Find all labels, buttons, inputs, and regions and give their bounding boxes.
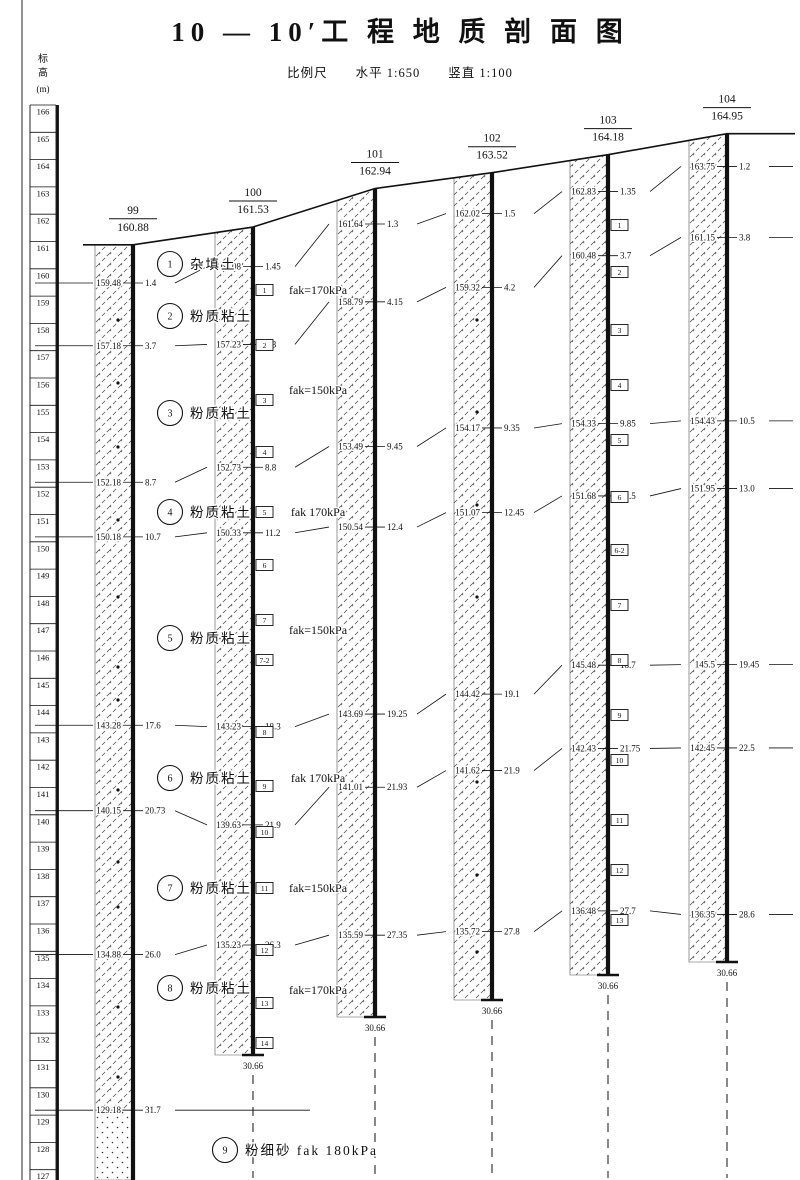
drawing-text: 1.3 <box>387 219 399 229</box>
ruler-elevation-value: 131 <box>37 1062 50 1072</box>
drawing-text: 6 <box>618 493 622 502</box>
drawing-text: 7 <box>618 601 622 610</box>
ruler-elevation-value: 143 <box>37 734 50 744</box>
ruler-elevation-value: 129 <box>37 1117 50 1127</box>
ruler-elevation-value: 159 <box>37 298 50 308</box>
sample-dot <box>116 698 119 701</box>
ruler-elevation-value: 164 <box>37 161 51 171</box>
axis-unit: (m) <box>37 84 50 94</box>
soil-column-104 <box>689 134 727 962</box>
drawing-text: 11 <box>261 884 268 893</box>
drawing-text: 8 <box>168 984 173 995</box>
boundary-segment <box>650 911 681 915</box>
sample-dot <box>475 780 478 783</box>
layer-boundary-5: 143.2817.6143.2318.3143.6919.25144.4219.… <box>35 660 793 732</box>
drawing-text: 31.7 <box>145 1105 161 1115</box>
ruler-elevation-value: 142 <box>37 762 50 772</box>
ruler-elevation-value: 132 <box>37 1035 50 1045</box>
boundary-segment <box>534 911 562 932</box>
sample-dot <box>116 381 119 384</box>
drawing-text: 151.68 <box>571 491 596 501</box>
fak-label: fak=150kPa <box>289 623 348 637</box>
ground-surface-line <box>83 134 795 245</box>
sample-dot <box>475 873 478 876</box>
borehole-id: 102 <box>483 133 501 145</box>
drawing-text: 13 <box>261 999 269 1008</box>
ruler-elevation-value: 133 <box>37 1007 50 1017</box>
drawing-text: 7 <box>168 884 173 895</box>
boundary-segment <box>650 665 681 666</box>
boundary-segment <box>175 533 207 537</box>
drawing-text: 5 <box>168 634 173 645</box>
sand-dot-band <box>95 1110 133 1180</box>
sample-dot <box>475 318 478 321</box>
layer-name: 粉质粘土 <box>190 981 252 996</box>
boundary-segment <box>295 935 329 945</box>
drawing-text: 135.59 <box>338 930 363 940</box>
drawing-text: 5 <box>618 436 622 445</box>
drawing-text: 134.88 <box>96 950 121 960</box>
layer-boundary-8: 129.1831.7 <box>35 1105 310 1115</box>
drawing-text: 1 <box>168 260 173 271</box>
ruler-elevation-value: 144 <box>37 707 51 717</box>
drawing-text: 135.23 <box>216 940 241 950</box>
boundary-segment <box>417 287 446 301</box>
drawing-text: 151.07 <box>455 508 480 518</box>
sample-dot <box>475 950 478 953</box>
borehole-depth-label: 30.66 <box>717 968 738 978</box>
drawing-text: 160.48 <box>571 251 596 261</box>
drawing-text: 8.8 <box>265 462 277 472</box>
drawing-text: 154.33 <box>571 419 596 429</box>
drawing-text: 143.69 <box>338 709 363 719</box>
geological-profile-drawing: 159.481.4160.081.45161.641.3162.021.5162… <box>0 0 800 1180</box>
soil-column-99 <box>95 245 133 1180</box>
drawing-text: 2 <box>618 268 622 277</box>
borehole-top-elevation: 161.53 <box>237 204 269 216</box>
boundary-segment <box>295 714 329 727</box>
drawing-text: 12 <box>616 866 624 875</box>
drawing-text: 10.5 <box>739 416 755 426</box>
drawing-text: 19.45 <box>739 660 760 670</box>
drawing-text: 157.23 <box>216 339 241 349</box>
borehole-top-elevation: 160.88 <box>117 222 149 234</box>
soil-column-102 <box>454 173 492 1000</box>
ruler-elevation-value: 150 <box>37 543 50 553</box>
boundary-segment <box>417 771 446 788</box>
layer-name: 杂填土 <box>190 257 237 272</box>
borehole-id: 104 <box>718 94 736 106</box>
sample-dot <box>116 445 119 448</box>
ruler-elevation-value: 156 <box>37 380 50 390</box>
sample-dot <box>475 595 478 598</box>
layer-name: 粉质粘土 <box>190 406 252 421</box>
drawing-text: 162.83 <box>571 187 596 197</box>
drawing-text: 157.18 <box>96 341 121 351</box>
boundary-segment <box>417 214 446 224</box>
fak-label: fak=150kPa <box>289 383 348 397</box>
sample-dot <box>116 595 119 598</box>
sample-dot <box>116 905 119 908</box>
ruler-elevation-value: 162 <box>37 216 50 226</box>
drawing-text: 21.93 <box>387 782 408 792</box>
drawing-text: 9.45 <box>387 442 403 452</box>
borehole-top-elevation: 163.52 <box>476 150 508 162</box>
drawing-text: 145.5 <box>695 660 716 670</box>
drawing-text: 143.23 <box>216 722 241 732</box>
boundary-segment <box>417 428 446 447</box>
ruler-elevation-value: 165 <box>37 134 50 144</box>
clay-hatch-band <box>95 245 133 1110</box>
layer-name: 粉质粘土 <box>190 771 252 786</box>
sample-dot <box>116 860 119 863</box>
sample-dot <box>116 665 119 668</box>
drawing-text: 163.75 <box>690 161 715 171</box>
sample-dot <box>116 318 119 321</box>
ruler-elevation-value: 147 <box>37 625 50 635</box>
drawing-text: 3 <box>263 396 267 405</box>
drawing-text: 2 <box>263 341 267 350</box>
ruler-elevation-value: 157 <box>37 352 50 362</box>
fak-label: fak=150kPa <box>289 881 348 895</box>
drawing-text: 161.15 <box>690 232 715 242</box>
borehole-id: 103 <box>599 115 617 127</box>
ruler-elevation-value: 145 <box>37 680 50 690</box>
drawing-text: 1.5 <box>504 209 516 219</box>
drawing-text: 152.18 <box>96 477 121 487</box>
boundary-segment <box>650 166 681 191</box>
borehole-depth-label: 30.66 <box>482 1006 503 1016</box>
clay-hatch-band <box>570 155 608 975</box>
drawing-text: 12.4 <box>387 522 403 532</box>
ruler-elevation-value: 153 <box>37 461 50 471</box>
drawing-text: 4 <box>618 381 622 390</box>
drawing-text: 1.45 <box>265 262 281 272</box>
drawing-text: 9 <box>263 782 267 791</box>
axis-header: 标 <box>38 53 48 65</box>
drawing-text: 13.0 <box>739 484 755 494</box>
drawing-text: 150.33 <box>216 528 241 538</box>
boundary-segment <box>175 945 207 955</box>
ruler-elevation-value: 141 <box>37 789 50 799</box>
drawing-text: 159.32 <box>455 282 480 292</box>
drawing-text: 7-2 <box>260 656 270 665</box>
drawing-text: 9 <box>618 711 622 720</box>
borehole-depth-label: 30.66 <box>598 981 619 991</box>
layer-name: 粉质粘土 <box>190 309 252 324</box>
boundary-segment <box>175 467 207 482</box>
ruler-elevation-value: 152 <box>37 489 50 499</box>
drawing-text: 150.54 <box>338 522 363 532</box>
drawing-text: 10 <box>261 828 269 837</box>
drawing-text: 152.73 <box>216 462 241 472</box>
clay-hatch-band <box>454 173 492 1000</box>
drawing-text: 22.5 <box>739 743 755 753</box>
drawing-text: 9.35 <box>504 423 520 433</box>
drawing-text: 26.0 <box>145 950 161 960</box>
ruler-elevation-value: 136 <box>37 926 50 936</box>
drawing-text: 135.72 <box>455 927 480 937</box>
fak-label: fak 170kPa <box>291 771 346 785</box>
drawing-text: 136.48 <box>571 906 596 916</box>
ruler-elevation-value: 154 <box>37 434 51 444</box>
boundary-segment <box>295 302 329 345</box>
boundary-segment <box>175 725 207 726</box>
axis-header: 高 <box>38 66 48 79</box>
boundary-segment <box>650 421 681 424</box>
drawing-text: 10 <box>616 756 624 765</box>
drawing-text: 4.2 <box>504 282 515 292</box>
ruler-elevation-value: 149 <box>37 571 50 581</box>
drawing-text: 136.35 <box>690 909 715 919</box>
boundary-segment <box>417 694 446 714</box>
sample-dot <box>475 503 478 506</box>
ruler-elevation-value: 138 <box>37 871 50 881</box>
borehole-id: 100 <box>244 187 262 199</box>
layer-boundary-6: 140.1520.73139.6321.9141.0121.93141.6221… <box>35 743 793 830</box>
borehole-top-elevation: 164.18 <box>592 132 624 144</box>
layer-name: 粉质粘土 <box>190 881 252 896</box>
boundary-segment <box>175 811 207 825</box>
drawing-text: 17.6 <box>145 720 161 730</box>
ruler-elevation-value: 135 <box>37 953 50 963</box>
drawing-text: 6 <box>168 774 173 785</box>
boundary-segment <box>534 748 562 770</box>
drawing-text: 139.63 <box>216 820 241 830</box>
borehole-id: 101 <box>366 149 384 161</box>
drawing-text: 1.4 <box>145 278 157 288</box>
borehole-id: 99 <box>127 205 139 217</box>
drawing-text: 6-2 <box>615 546 625 555</box>
drawing-text: 4 <box>168 508 173 519</box>
layer-label-9: 9粉细砂 fak 180kPa <box>213 1138 379 1163</box>
drawing-sheet: 10 — 10′工 程 地 质 剖 面 图 比例尺水平 1:650竖直 1:10… <box>0 0 800 1180</box>
drawing-text: 19.25 <box>387 709 408 719</box>
boundary-segment <box>295 224 329 267</box>
ruler-elevation-value: 128 <box>37 1144 50 1154</box>
drawing-text: 153.49 <box>338 442 363 452</box>
ruler-elevation-value: 163 <box>37 188 50 198</box>
ruler-bold-bar <box>56 105 59 1180</box>
drawing-text: 162.02 <box>455 209 480 219</box>
drawing-text: 154.43 <box>690 416 715 426</box>
ruler-elevation-value: 166 <box>37 107 50 117</box>
layer-name: 粉质粘土 <box>190 631 252 646</box>
drawing-text: 8 <box>618 656 622 665</box>
fak-label: fak=170kPa <box>289 983 348 997</box>
borehole-depth-label: 30.66 <box>365 1023 386 1033</box>
drawing-text: 141.62 <box>455 766 480 776</box>
drawing-text: 3 <box>618 326 622 335</box>
boundary-segment <box>650 748 681 749</box>
drawing-text: 13 <box>616 916 624 925</box>
ruler-elevation-value: 134 <box>37 980 51 990</box>
drawing-text: 1 <box>618 221 622 230</box>
sample-dot <box>116 518 119 521</box>
sample-dot <box>475 410 478 413</box>
boundary-segment <box>295 527 329 533</box>
drawing-text: 144.42 <box>455 689 480 699</box>
layer-name: 粉质粘土 <box>190 505 252 520</box>
ruler-elevation-value: 146 <box>37 653 50 663</box>
layer-boundary-4: 150.1810.7150.3311.2150.5412.4151.0712.4… <box>35 484 793 542</box>
drawing-text: 10.7 <box>145 532 161 542</box>
clay-hatch-band <box>689 134 727 962</box>
ruler-elevation-value: 155 <box>37 407 50 417</box>
drawing-text: 3 <box>168 409 173 420</box>
drawing-text: 21.9 <box>504 766 520 776</box>
soil-column-103 <box>570 155 608 975</box>
elevation-ruler: 1661651641631621611601591581571561551541… <box>22 0 59 1180</box>
drawing-text: 3.8 <box>739 232 751 242</box>
boundary-segment <box>295 447 329 468</box>
drawing-text: 159.48 <box>96 278 121 288</box>
drawing-text: 8.7 <box>145 477 157 487</box>
fak-label: fak=170kPa <box>289 283 348 297</box>
ruler-elevation-value: 127 <box>37 1171 50 1180</box>
fak-label: fak 170kPa <box>291 505 346 519</box>
sample-dot <box>116 1005 119 1008</box>
drawing-text: 11 <box>616 816 623 825</box>
drawing-text: 3.7 <box>620 251 632 261</box>
drawing-text: 5 <box>263 508 267 517</box>
drawing-text: 1 <box>263 286 267 295</box>
boundary-segment <box>295 787 329 825</box>
drawing-text: 9.85 <box>620 419 636 429</box>
drawing-text: 4.15 <box>387 297 403 307</box>
drawing-text: 11.2 <box>265 528 280 538</box>
boundary-segment <box>175 344 207 345</box>
drawing-text: 2 <box>168 312 173 323</box>
drawing-text: 161.64 <box>338 219 363 229</box>
drawing-text: 143.28 <box>96 720 121 730</box>
boundary-segment <box>650 489 681 496</box>
layer-boundary-2: 157.183.7157.234.3158.794.15159.324.2160… <box>35 232 793 350</box>
drawing-text: 12.45 <box>504 508 525 518</box>
drawing-text: 142.43 <box>571 743 596 753</box>
drawing-text: 7 <box>263 616 267 625</box>
drawing-text: 27.35 <box>387 930 408 940</box>
ruler-elevation-value: 158 <box>37 325 50 335</box>
boundary-segment <box>534 192 562 214</box>
drawing-text: 154.17 <box>455 423 480 433</box>
boundary-segment <box>534 496 562 513</box>
drawing-text: 14 <box>261 1039 269 1048</box>
drawing-text: 1.2 <box>739 161 750 171</box>
boundary-segment <box>417 513 446 527</box>
ruler-elevation-value: 161 <box>37 243 50 253</box>
sample-dot <box>116 1075 119 1078</box>
layer-name: 粉细砂 fak 180kPa <box>245 1143 378 1158</box>
borehole-depth-label: 30.66 <box>243 1061 264 1071</box>
drawing-text: 142.45 <box>690 743 715 753</box>
drawing-text: 140.15 <box>96 806 121 816</box>
ruler-elevation-value: 137 <box>37 898 50 908</box>
ruler-elevation-value: 151 <box>37 516 50 526</box>
drawing-text: 27.8 <box>504 927 520 937</box>
drawing-text: 4 <box>263 448 267 457</box>
ruler-elevation-value: 139 <box>37 844 50 854</box>
ruler-elevation-value: 140 <box>37 816 50 826</box>
drawing-text: 129.18 <box>96 1105 121 1115</box>
drawing-text: 21.75 <box>620 743 641 753</box>
drawing-text: 1.35 <box>620 187 636 197</box>
drawing-text: 150.18 <box>96 532 121 542</box>
drawing-text: 151.95 <box>690 484 715 494</box>
ruler-elevation-value: 160 <box>37 270 50 280</box>
ruler-elevation-value: 148 <box>37 598 50 608</box>
borehole-top-elevation: 162.94 <box>359 166 391 178</box>
drawing-text: 6 <box>263 561 267 570</box>
boundary-segment <box>417 932 446 936</box>
drawing-text: 145.48 <box>571 660 596 670</box>
boundary-segment <box>534 424 562 428</box>
boundary-segment <box>534 665 562 694</box>
layer-boundary-7: 134.8826.0135.2326.3135.5927.35135.7227.… <box>35 906 793 960</box>
drawing-text: 12 <box>261 946 269 955</box>
borehole-top-elevation: 164.95 <box>711 111 743 123</box>
drawing-text: 8 <box>263 728 267 737</box>
layer-boundary-3: 152.188.7152.738.8153.499.45154.179.3515… <box>35 416 793 487</box>
drawing-text: 158.79 <box>338 297 363 307</box>
boundary-segment <box>534 256 562 288</box>
drawing-text: 20.73 <box>145 806 166 816</box>
drawing-text: 3.7 <box>145 341 157 351</box>
boundary-segment <box>650 237 681 255</box>
drawing-text: 9 <box>223 1146 228 1157</box>
drawing-text: 19.1 <box>504 689 520 699</box>
drawing-text: 28.6 <box>739 909 755 919</box>
ruler-elevation-value: 130 <box>37 1089 50 1099</box>
sample-dot <box>116 788 119 791</box>
